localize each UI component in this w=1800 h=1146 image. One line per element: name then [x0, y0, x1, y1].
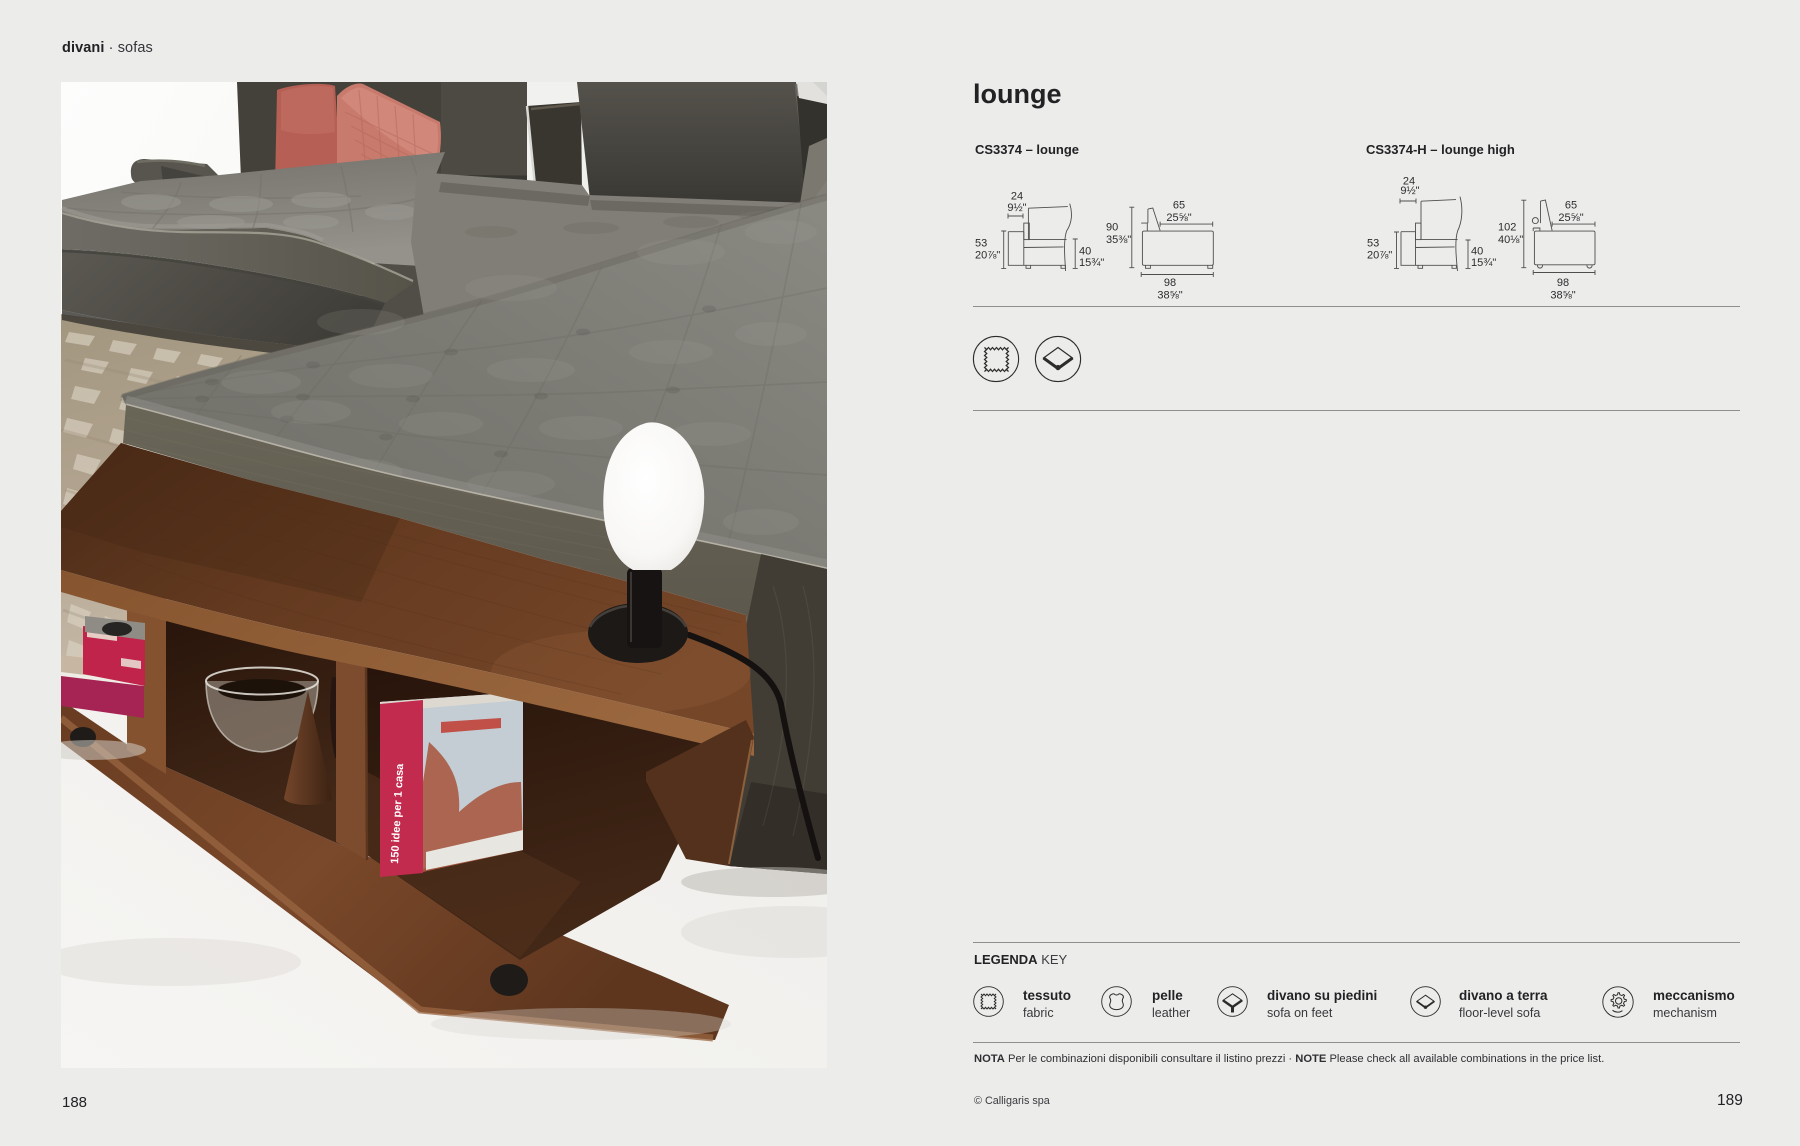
svg-text:9½": 9½" [1400, 185, 1419, 197]
svg-text:40: 40 [1471, 246, 1483, 258]
svg-text:38⅝": 38⅝" [1550, 290, 1575, 302]
svg-text:24: 24 [1011, 191, 1023, 203]
svg-text:65: 65 [1565, 200, 1577, 212]
svg-text:90: 90 [1106, 222, 1118, 234]
svg-text:20⅞": 20⅞" [1367, 250, 1392, 262]
svg-text:15¾": 15¾" [1471, 257, 1496, 269]
svg-text:40⅛": 40⅛" [1498, 234, 1523, 246]
svg-text:102: 102 [1498, 222, 1516, 234]
svg-text:53: 53 [1367, 238, 1379, 250]
svg-text:65: 65 [1173, 200, 1185, 212]
svg-text:40: 40 [1079, 246, 1091, 258]
svg-text:25⅝": 25⅝" [1166, 212, 1191, 224]
svg-text:9½": 9½" [1007, 202, 1026, 214]
svg-text:38⅝": 38⅝" [1157, 290, 1182, 302]
svg-text:20⅞": 20⅞" [975, 250, 1000, 262]
svg-text:53: 53 [975, 238, 987, 250]
svg-text:35⅜": 35⅜" [1106, 234, 1131, 246]
svg-text:98: 98 [1557, 277, 1569, 289]
svg-text:25⅝": 25⅝" [1558, 212, 1583, 224]
svg-text:98: 98 [1164, 277, 1176, 289]
svg-text:15¾": 15¾" [1079, 257, 1104, 269]
